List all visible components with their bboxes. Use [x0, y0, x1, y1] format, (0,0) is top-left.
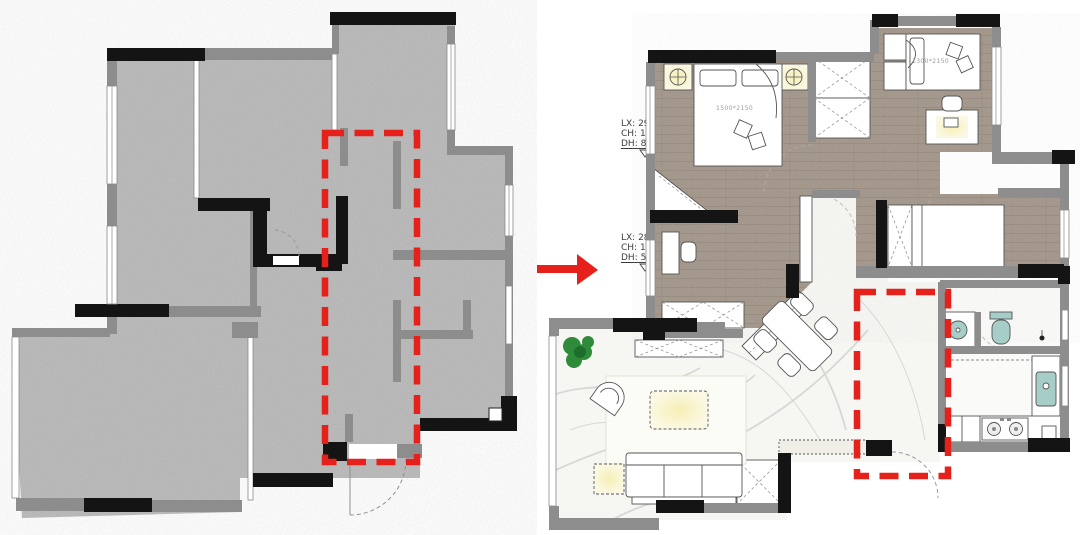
- coffee-table: [650, 391, 708, 429]
- column: [489, 408, 502, 421]
- red-arrow-icon: [537, 254, 598, 285]
- desk-chair: [681, 242, 696, 262]
- third-bedroom: [912, 205, 1004, 267]
- master-bed-size-label: 1500*2150: [716, 105, 753, 112]
- toilet-tank: [990, 312, 1012, 319]
- sofa: [626, 453, 742, 497]
- door-gap: [273, 256, 299, 265]
- corner-shelf: [1042, 426, 1056, 440]
- guest-bed-size-label: 1300*2150: [912, 58, 949, 65]
- entry-door-gap: [349, 444, 397, 459]
- wardrobe: [884, 34, 906, 60]
- floor-drain-icon: [1040, 336, 1045, 341]
- desk-chair: [942, 96, 962, 111]
- laptop: [944, 118, 958, 127]
- concrete-floor: [12, 18, 512, 518]
- living-room: [590, 376, 746, 504]
- toilet-icon: [992, 320, 1010, 344]
- floorplan-comparison: LX: 290 CH: 1640 DH: 870 LX: 280 CH: 190…: [0, 0, 1080, 535]
- floorplan-canvas: LX: 290 CH: 1640 DH: 870 LX: 280 CH: 190…: [0, 0, 1080, 535]
- floor-plan-after: 1500*2150 1300*2150: [549, 14, 1075, 530]
- side-table: [594, 464, 624, 494]
- desk: [662, 232, 679, 274]
- floor-plan-before: [12, 12, 517, 518]
- wardrobe: [884, 62, 906, 90]
- daybed: [912, 205, 1004, 267]
